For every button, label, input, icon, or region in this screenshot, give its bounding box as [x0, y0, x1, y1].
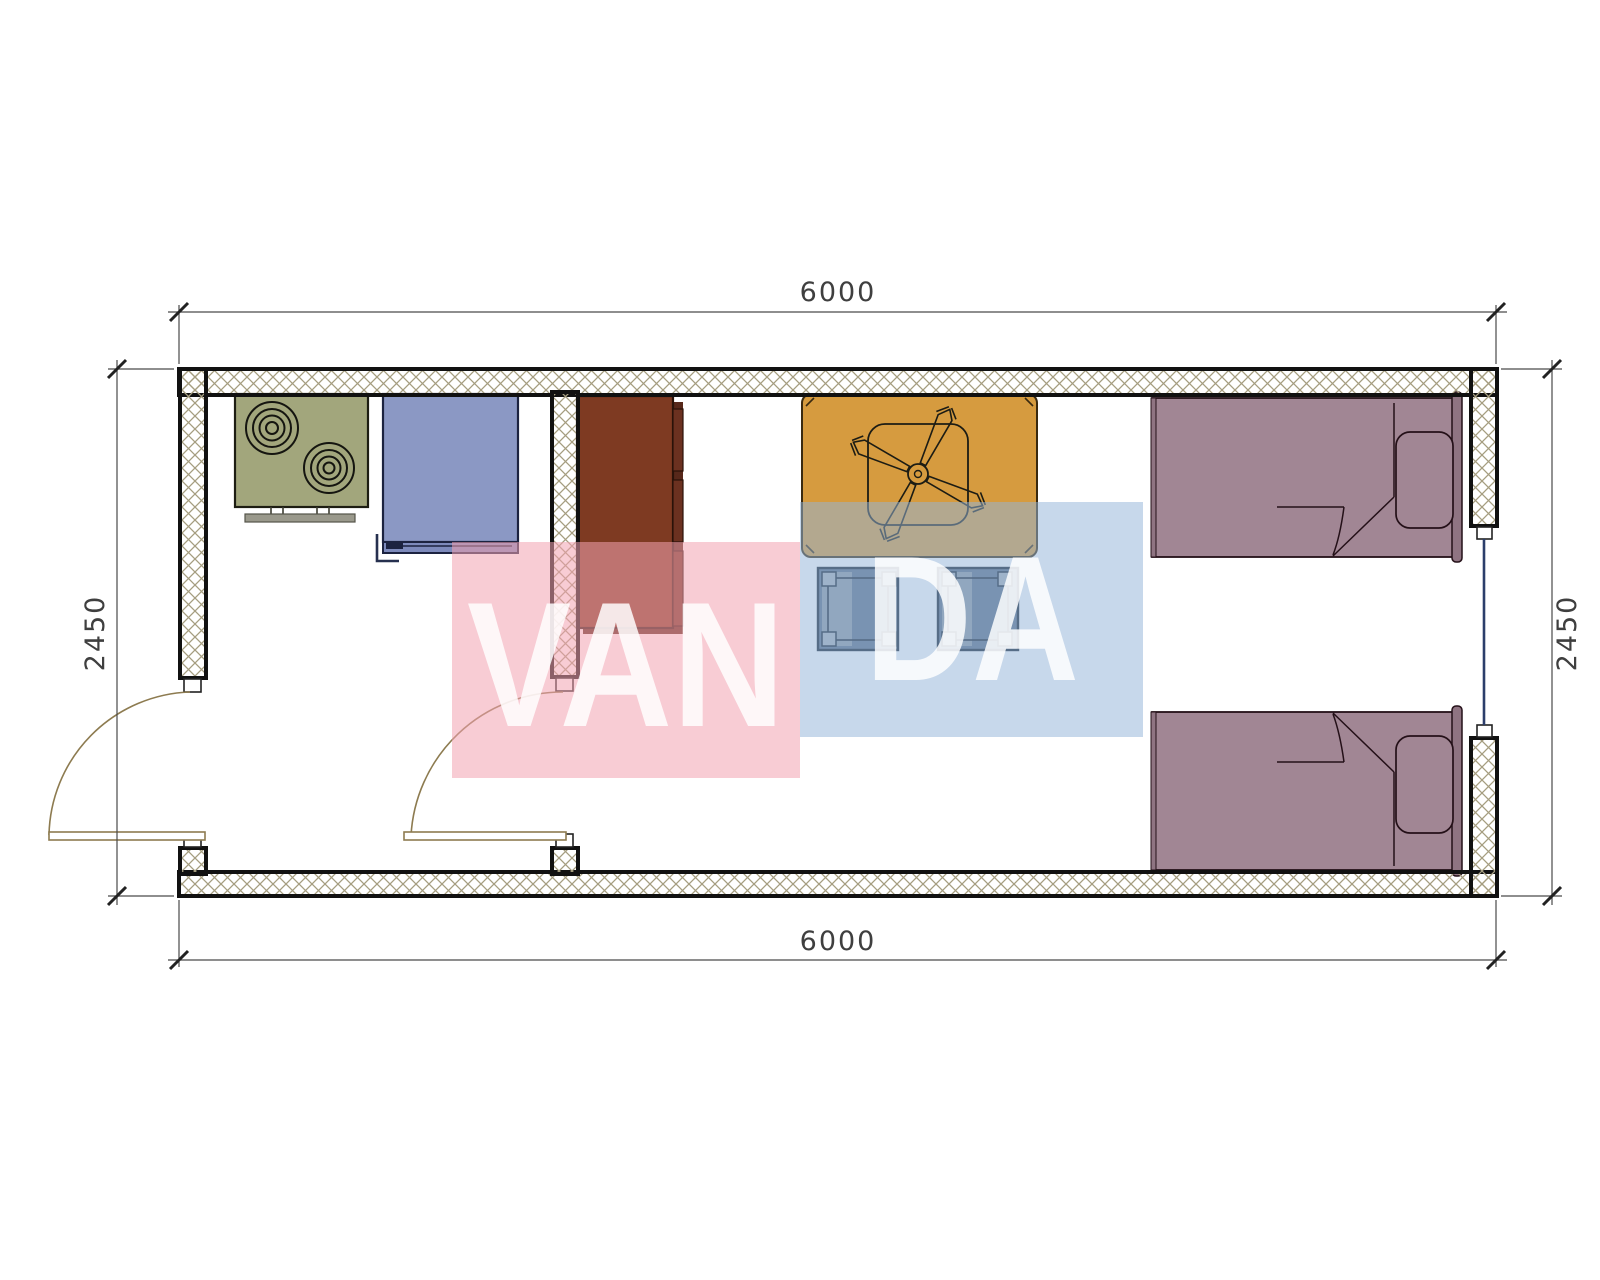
watermark: VAN DA: [452, 502, 1143, 778]
door-leaf: [404, 832, 566, 840]
dimension-top: [168, 303, 1507, 364]
bed-pillow: [1396, 736, 1453, 833]
wall-right-upper: [1471, 369, 1497, 526]
dimension-label-bottom: 6000: [800, 926, 877, 957]
watermark-text-van: VAN: [467, 565, 785, 764]
single-bed: [1151, 706, 1462, 876]
refrigerator: [377, 394, 518, 561]
dimension-label-left: 2450: [80, 595, 111, 672]
dimension-label-top: 6000: [800, 277, 877, 308]
floor-plan-drawing: 6000 6000 2450 2450 VAN DA: [0, 0, 1600, 1280]
wall-bottom: [179, 872, 1497, 896]
single-bed: [1151, 392, 1462, 562]
wall-right-lower: [1471, 738, 1497, 896]
wall-left-door-jamb: [180, 848, 206, 874]
wall-partition-door-jamb: [552, 848, 578, 874]
dimension-label-right: 2450: [1552, 595, 1583, 672]
cooktop-base-bar: [245, 514, 355, 522]
wall-top: [179, 369, 1497, 395]
wall-left-upper: [180, 369, 206, 678]
door-leaf: [49, 832, 205, 840]
watermark-text-da: DA: [865, 519, 1079, 718]
cooktop: [235, 394, 368, 522]
dimension-left: [108, 360, 174, 905]
refrigerator-hinge: [386, 543, 403, 549]
door-swing-arc: [49, 692, 190, 835]
floor-plan-page: 6000 6000 2450 2450 VAN DA: [0, 0, 1600, 1280]
bed-pillow: [1396, 432, 1453, 528]
entry-door: [49, 692, 205, 840]
